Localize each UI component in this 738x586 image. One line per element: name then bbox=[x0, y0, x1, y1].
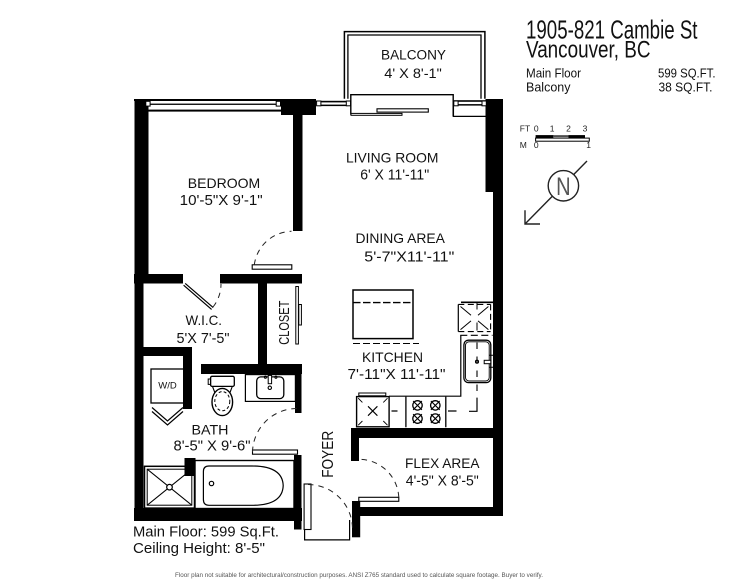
svg-text:FOYER: FOYER bbox=[320, 431, 337, 478]
svg-text:599 SQ.FT.: 599 SQ.FT. bbox=[658, 66, 716, 81]
svg-text:5'-7"X11'-11": 5'-7"X11'-11" bbox=[364, 250, 454, 266]
svg-text:DINING AREA: DINING AREA bbox=[355, 230, 445, 246]
svg-text:CLOSET: CLOSET bbox=[276, 301, 293, 345]
svg-text:6' X 11'-11": 6' X 11'-11" bbox=[360, 168, 429, 184]
svg-text:1: 1 bbox=[550, 123, 555, 133]
svg-text:7'-11"X 11'-11": 7'-11"X 11'-11" bbox=[348, 367, 446, 383]
svg-text:Floor plan not suitable for ar: Floor plan not suitable for architectura… bbox=[175, 572, 543, 579]
svg-text:N: N bbox=[556, 173, 571, 201]
svg-text:Main Floor: 599 Sq.Ft.: Main Floor: 599 Sq.Ft. bbox=[133, 525, 279, 541]
svg-text:BALCONY: BALCONY bbox=[381, 47, 446, 62]
svg-text:4'-5" X 8'-5": 4'-5" X 8'-5" bbox=[406, 473, 479, 489]
svg-text:4' X 8'-1": 4' X 8'-1" bbox=[384, 65, 442, 81]
svg-text:10'-5"X 9'-1": 10'-5"X 9'-1" bbox=[180, 193, 263, 209]
svg-text:BATH: BATH bbox=[192, 422, 229, 438]
svg-text:FLEX AREA: FLEX AREA bbox=[405, 455, 480, 471]
svg-text:8'-5" X 9'-6": 8'-5" X 9'-6" bbox=[174, 439, 251, 455]
svg-text:FT: FT bbox=[520, 123, 530, 133]
svg-text:0: 0 bbox=[534, 123, 539, 133]
svg-text:2: 2 bbox=[566, 123, 571, 133]
svg-text:5'X 7'-5": 5'X 7'-5" bbox=[177, 331, 230, 347]
svg-text:Main Floor: Main Floor bbox=[526, 66, 582, 81]
svg-text:KITCHEN: KITCHEN bbox=[362, 349, 423, 365]
svg-text:LIVING ROOM: LIVING ROOM bbox=[346, 149, 439, 165]
svg-text:Balcony: Balcony bbox=[526, 80, 571, 95]
svg-text:BEDROOM: BEDROOM bbox=[188, 175, 261, 191]
svg-text:38 SQ.FT.: 38 SQ.FT. bbox=[659, 80, 713, 95]
svg-text:3: 3 bbox=[583, 123, 588, 133]
svg-text:Vancouver, BC: Vancouver, BC bbox=[526, 37, 651, 64]
svg-text:W.I.C.: W.I.C. bbox=[186, 312, 223, 328]
svg-text:Ceiling Height: 8'-5": Ceiling Height: 8'-5" bbox=[133, 541, 265, 557]
svg-text:W/D: W/D bbox=[158, 381, 177, 392]
svg-text:M: M bbox=[520, 140, 527, 150]
